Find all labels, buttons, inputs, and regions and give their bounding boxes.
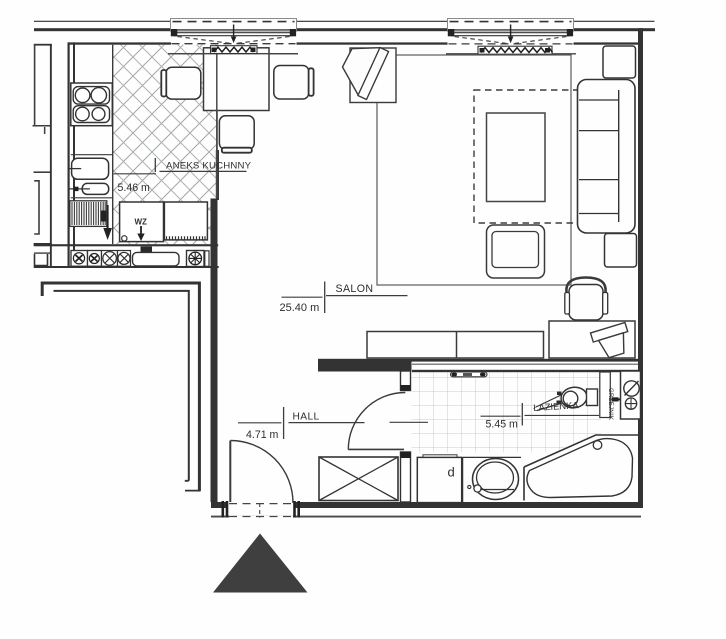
svg-text:WZ: WZ	[135, 218, 148, 227]
svg-text:SALON: SALON	[336, 283, 374, 295]
svg-text:5.46 m: 5.46 m	[118, 182, 151, 194]
svg-text:4.71 m: 4.71 m	[246, 429, 279, 441]
svg-text:d: d	[448, 465, 455, 480]
svg-text:GRZEJNIK: GRZEJNIK	[607, 388, 614, 421]
svg-text:HALL: HALL	[293, 411, 320, 422]
svg-text:5.45 m: 5.45 m	[486, 418, 519, 430]
svg-text:ANEKS KUCHNNY: ANEKS KUCHNNY	[166, 160, 252, 171]
svg-text:25.40 m: 25.40 m	[280, 302, 320, 314]
